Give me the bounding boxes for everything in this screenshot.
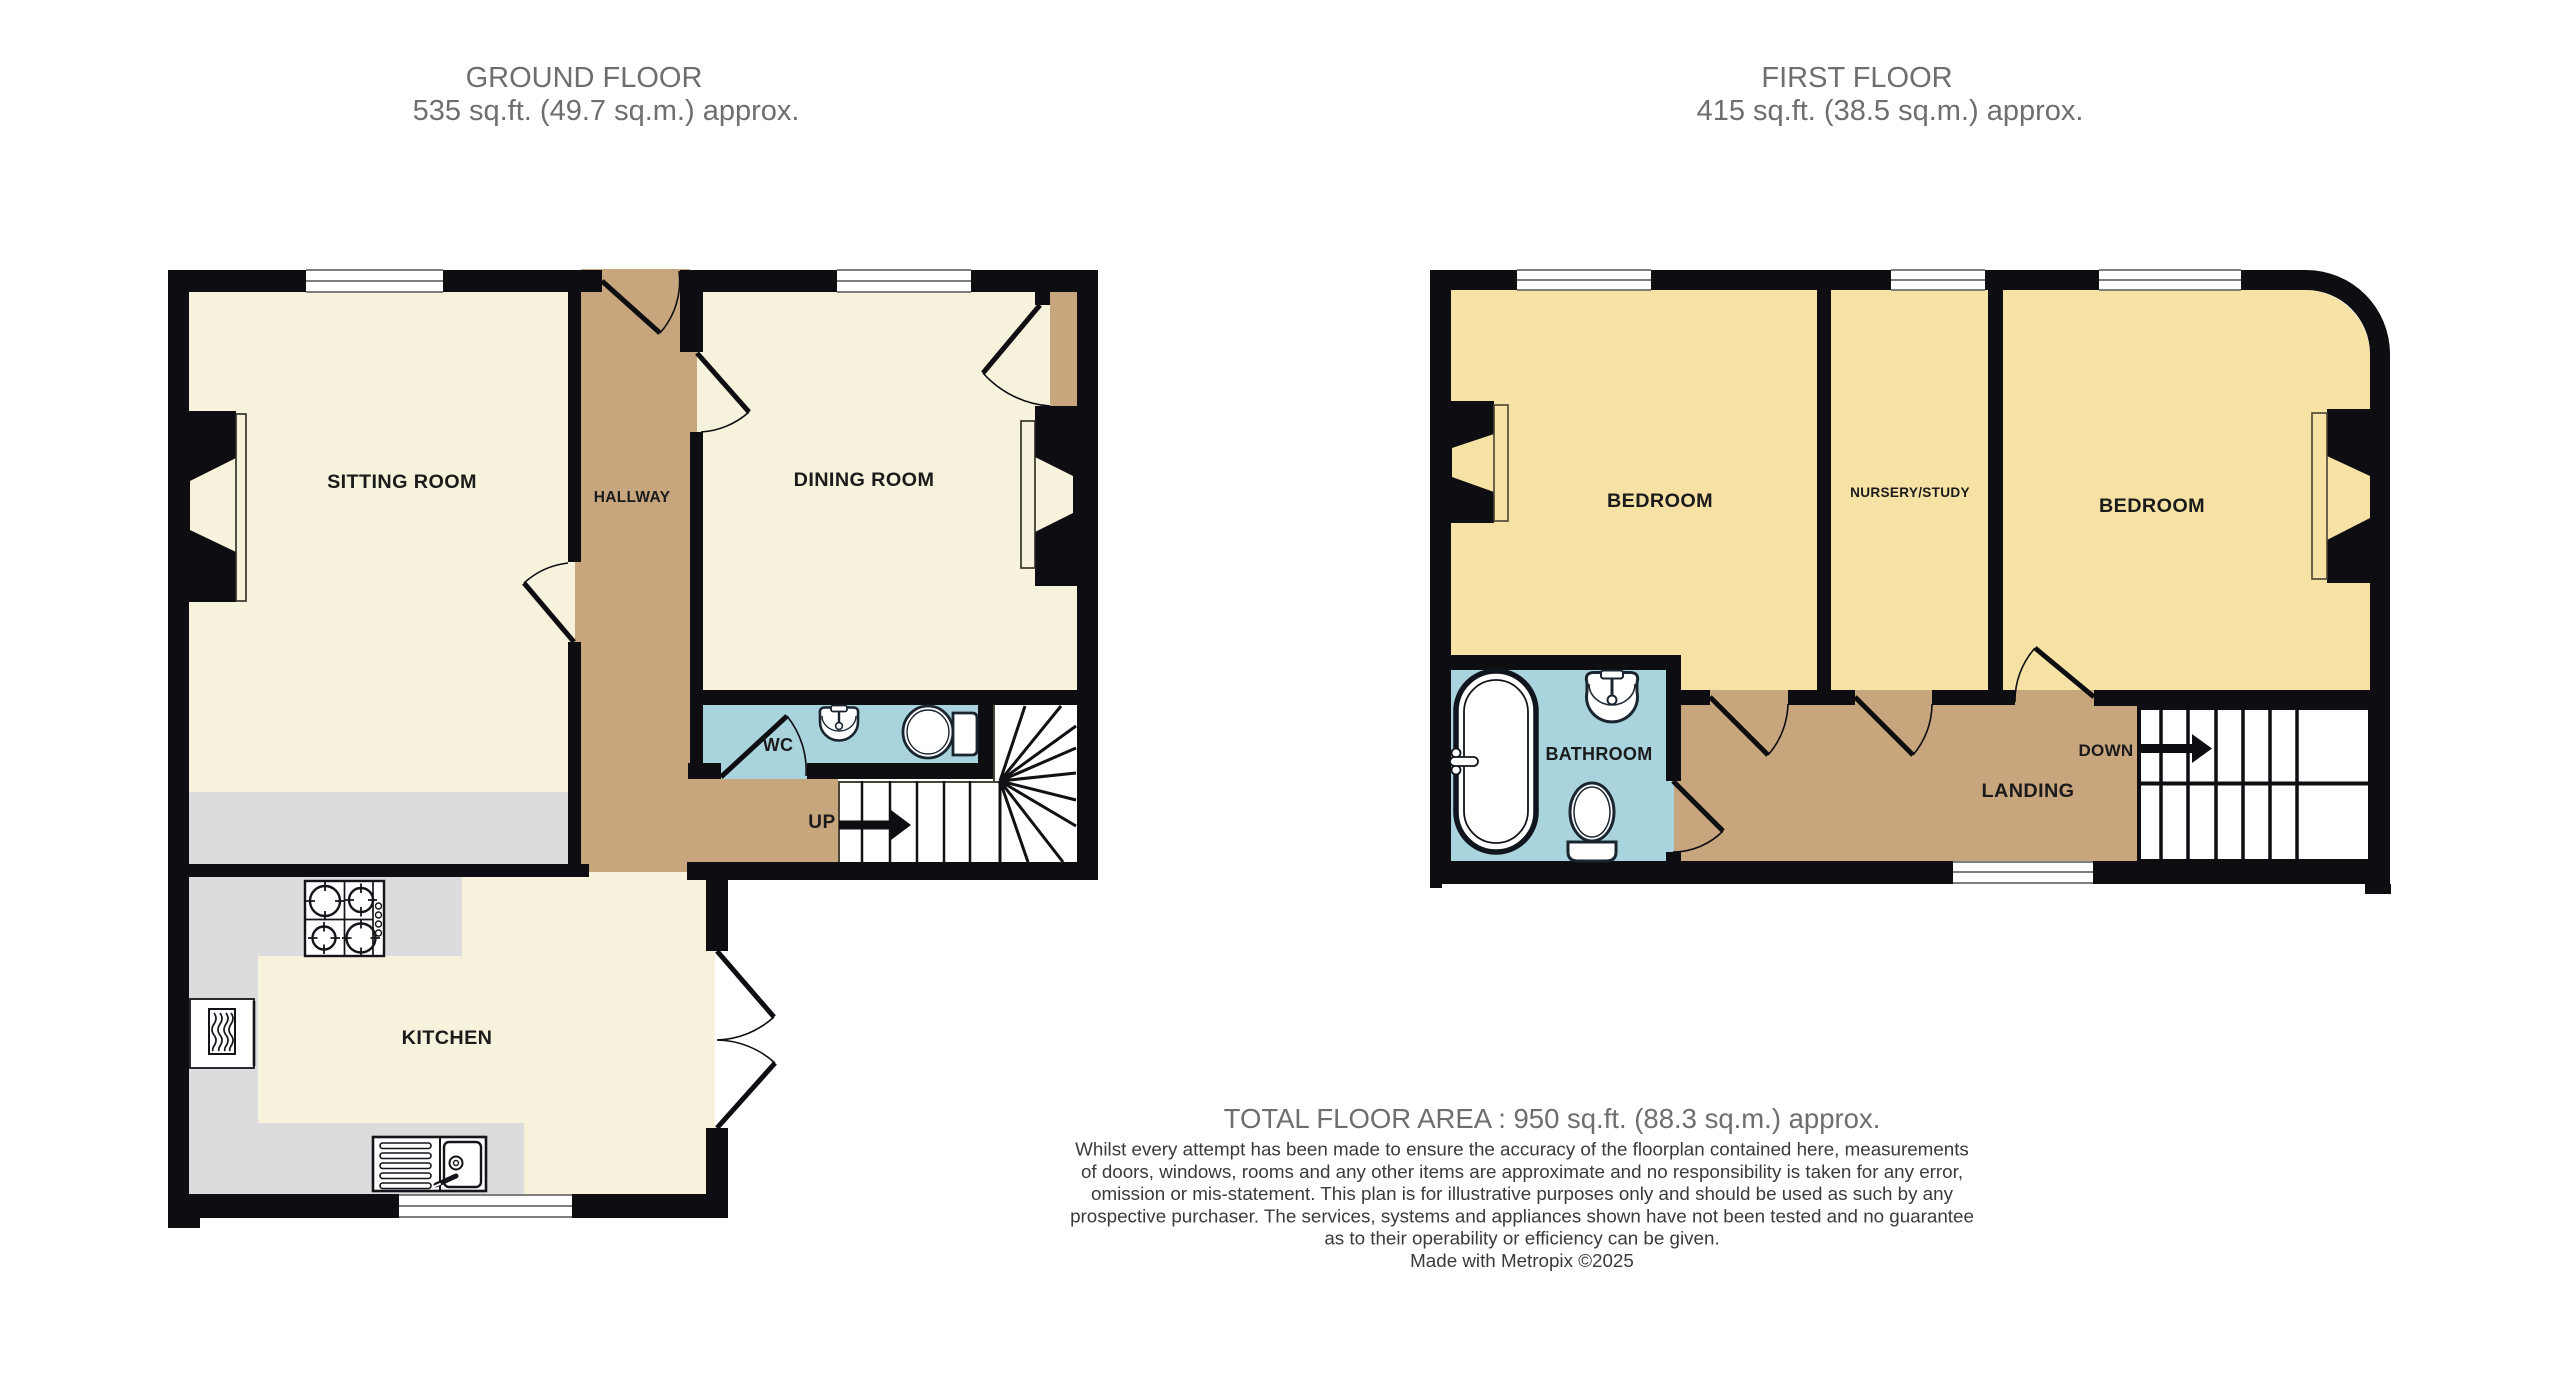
svg-text:KITCHEN: KITCHEN xyxy=(402,1027,493,1049)
svg-text:of doors, windows, rooms and a: of doors, windows, rooms and any other i… xyxy=(1081,1161,1963,1182)
svg-text:DOWN: DOWN xyxy=(2078,741,2133,760)
svg-text:LANDING: LANDING xyxy=(1982,780,2075,802)
svg-text:FIRST FLOOR: FIRST FLOOR xyxy=(1761,62,1952,94)
svg-text:Made with Metropix ©2025: Made with Metropix ©2025 xyxy=(1410,1250,1634,1271)
svg-text:NURSERY/STUDY: NURSERY/STUDY xyxy=(1850,485,1970,500)
svg-text:prospective purchaser. The ser: prospective purchaser. The services, sys… xyxy=(1070,1205,1974,1226)
svg-text:TOTAL FLOOR AREA : 950 sq.ft.: TOTAL FLOOR AREA : 950 sq.ft. (88.3 sq.m… xyxy=(1224,1103,1881,1134)
svg-text:BEDROOM: BEDROOM xyxy=(2099,495,2205,517)
svg-text:as to their operability or eff: as to their operability or efficiency ca… xyxy=(1324,1228,1719,1249)
svg-text:535 sq.ft. (49.7 sq.m.) approx: 535 sq.ft. (49.7 sq.m.) approx. xyxy=(413,95,800,127)
svg-text:415 sq.ft. (38.5 sq.m.) approx: 415 sq.ft. (38.5 sq.m.) approx. xyxy=(1697,95,2084,127)
svg-text:SITTING ROOM: SITTING ROOM xyxy=(327,471,477,493)
svg-text:GROUND FLOOR: GROUND FLOOR xyxy=(466,62,703,94)
svg-text:WC: WC xyxy=(763,735,794,755)
svg-text:BATHROOM: BATHROOM xyxy=(1545,744,1652,764)
svg-text:DINING ROOM: DINING ROOM xyxy=(794,469,935,491)
svg-text:omission or mis-statement. Thi: omission or mis-statement. This plan is … xyxy=(1091,1183,1954,1204)
svg-text:UP: UP xyxy=(808,812,835,833)
svg-text:HALLWAY: HALLWAY xyxy=(594,489,671,506)
svg-text:BEDROOM: BEDROOM xyxy=(1607,490,1713,512)
svg-text:Whilst every attempt has been: Whilst every attempt has been made to en… xyxy=(1075,1139,1969,1160)
